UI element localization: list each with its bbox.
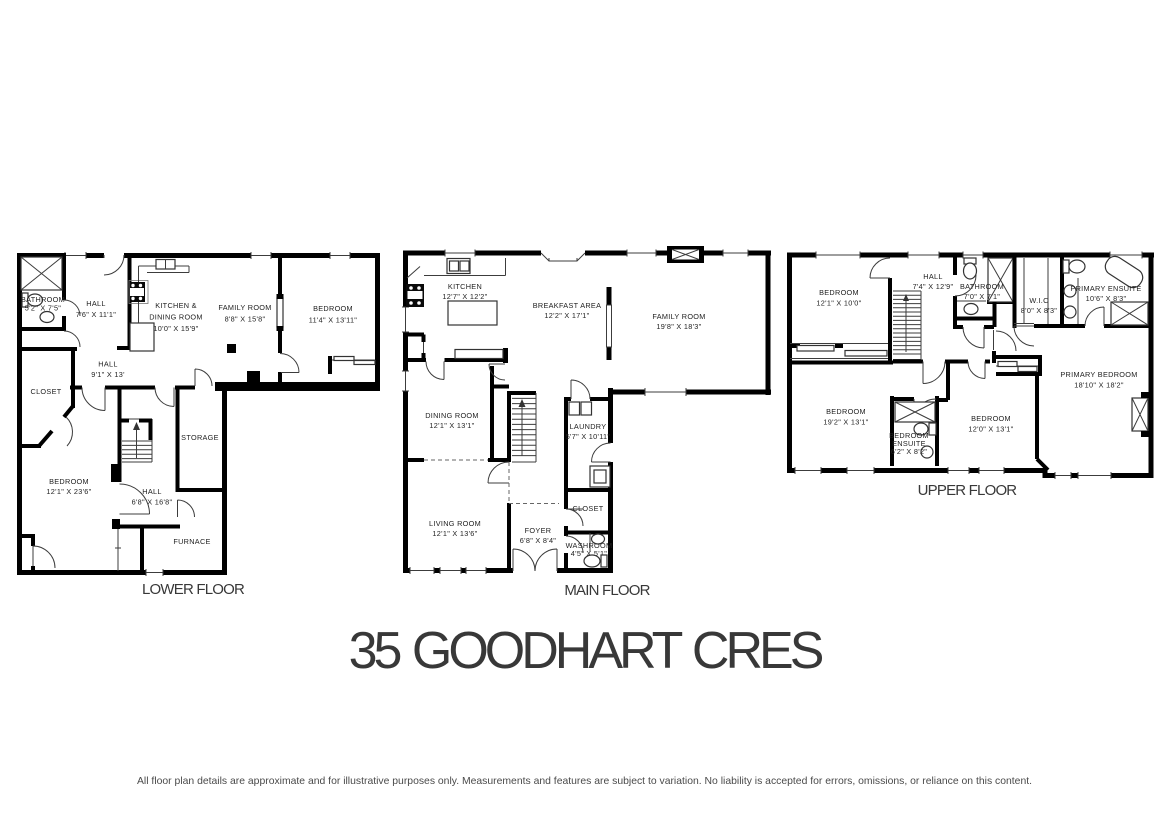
svg-text:12'0" X 13'1": 12'0" X 13'1" [968,425,1013,434]
svg-text:12'1" X 23'6": 12'1" X 23'6" [46,487,91,496]
svg-text:8'8" X 15'8": 8'8" X 15'8" [225,315,266,324]
svg-text:19'8" X 18'3": 19'8" X 18'3" [656,322,701,331]
svg-text:7'0" X 7'1": 7'0" X 7'1" [964,292,1001,301]
svg-text:6'2" X 8'2": 6'2" X 8'2" [891,447,928,456]
svg-text:LIVING ROOM: LIVING ROOM [429,519,481,528]
svg-text:LAUNDRY: LAUNDRY [570,422,607,431]
svg-text:5'2" X 7'5": 5'2" X 7'5" [25,304,62,313]
svg-text:DINING ROOM: DINING ROOM [425,411,479,420]
svg-text:DINING ROOM: DINING ROOM [149,313,203,322]
svg-text:18'10" X 18'2": 18'10" X 18'2" [1074,381,1124,390]
svg-text:19'2" X 13'1": 19'2" X 13'1" [823,418,868,427]
svg-text:HALL: HALL [923,272,942,281]
svg-text:FOYER: FOYER [525,526,552,535]
svg-text:STORAGE: STORAGE [181,433,219,442]
svg-text:BEDROOM: BEDROOM [971,414,1011,423]
svg-text:FURNACE: FURNACE [173,537,210,546]
svg-text:BEDROOM: BEDROOM [49,477,89,486]
svg-text:KITCHEN &: KITCHEN & [155,301,197,310]
svg-text:HALL: HALL [98,360,117,369]
svg-text:12'1" X 10'0": 12'1" X 10'0" [816,299,861,308]
svg-text:BREAKFAST AREA: BREAKFAST AREA [533,301,602,310]
svg-text:CLOSET: CLOSET [31,387,62,396]
svg-text:10'0" X 15'9": 10'0" X 15'9" [153,324,198,333]
svg-text:12'2" X 17'1": 12'2" X 17'1" [544,311,589,320]
svg-text:12'7" X 12'2": 12'7" X 12'2" [442,292,487,301]
svg-text:5'7" X 10'11": 5'7" X 10'11" [566,432,611,441]
svg-text:PRIMARY ENSUITE: PRIMARY ENSUITE [1070,284,1141,293]
svg-text:12'1" X 13'6": 12'1" X 13'6" [432,529,477,538]
svg-text:HALL: HALL [86,299,105,308]
svg-text:CLOSET: CLOSET [573,504,604,513]
svg-text:11'4" X 13'11": 11'4" X 13'11" [309,316,358,325]
svg-text:9'1" X 13': 9'1" X 13' [91,370,125,379]
svg-text:10'6" X 8'3": 10'6" X 8'3" [1086,294,1127,303]
svg-text:FAMILY ROOM: FAMILY ROOM [652,312,705,321]
svg-text:BEDROOM: BEDROOM [819,288,859,297]
svg-text:12'1" X 13'1": 12'1" X 13'1" [429,421,474,430]
svg-text:6'8" X 16'8": 6'8" X 16'8" [132,498,173,507]
svg-text:BEDROOM: BEDROOM [313,304,353,313]
svg-text:UPPER FLOOR: UPPER FLOOR [918,482,1018,499]
svg-text:6'8" X 8'4": 6'8" X 8'4" [520,536,557,545]
svg-text:7'6" X 11'1": 7'6" X 11'1" [76,310,116,319]
svg-text:7'4" X 12'9": 7'4" X 12'9" [913,282,954,291]
svg-text:FAMILY ROOM: FAMILY ROOM [218,303,271,312]
svg-text:HALL: HALL [142,487,161,496]
svg-text:LOWER FLOOR: LOWER FLOOR [142,581,245,598]
svg-text:W.I.C: W.I.C [1029,296,1048,305]
svg-text:BATHROOM: BATHROOM [960,282,1004,291]
svg-text:MAIN FLOOR: MAIN FLOOR [564,582,650,599]
svg-text:KITCHEN: KITCHEN [448,282,482,291]
svg-text:BEDROOM: BEDROOM [826,407,866,416]
svg-text:PRIMARY BEDROOM: PRIMARY BEDROOM [1060,370,1137,379]
svg-text:8'0" X 8'3": 8'0" X 8'3" [1021,306,1058,315]
